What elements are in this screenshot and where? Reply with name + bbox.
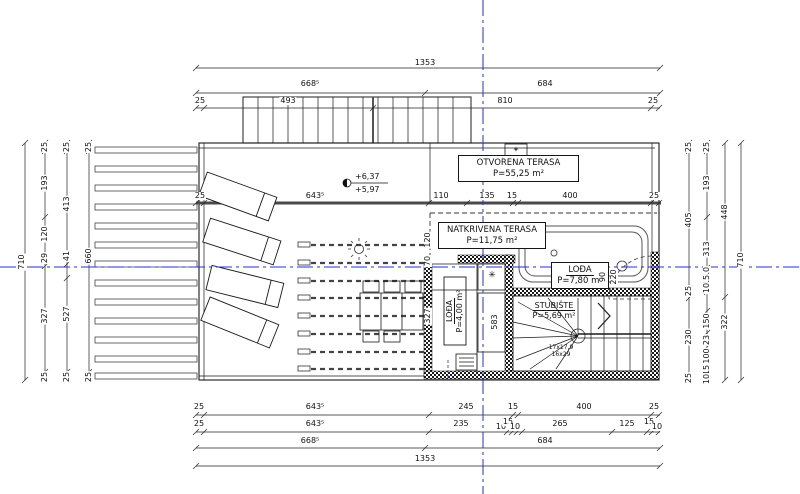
dim-label: 10	[651, 423, 663, 431]
room-name: OTVORENA TERASA	[462, 158, 575, 169]
room-label-otvorena-terasa: OTVORENA TERASA P=55,25 m²	[458, 155, 579, 182]
dim-label: 527	[63, 305, 71, 322]
dim-label: 25	[648, 403, 660, 411]
dining-set	[360, 281, 423, 342]
room-area: P=4,00 m²	[455, 278, 465, 344]
dim-label: 322	[721, 313, 729, 330]
dim-label: 405	[685, 211, 693, 228]
room-area: P=55,25 m²	[462, 169, 575, 180]
sun-icon	[348, 238, 370, 260]
dim-label: 70	[424, 255, 432, 267]
dim-label: 25	[685, 372, 693, 384]
dim-label: 10	[703, 282, 711, 294]
dim-label: 193	[703, 174, 711, 191]
room-label-natkrivena-terasa: NATKRIVENA TERASA P=11,75 m²	[438, 222, 546, 249]
dim-label: 15	[506, 192, 518, 200]
dim-label: 25	[41, 141, 49, 153]
dim-label: 25	[648, 192, 660, 200]
dim-label: 413	[63, 195, 71, 212]
dim-label: 220	[610, 268, 618, 285]
centerlines	[0, 0, 800, 494]
dim-label: 245	[457, 403, 474, 411]
dim-label: 90	[599, 271, 607, 283]
room-name: NATKRIVENA TERASA	[442, 225, 542, 236]
dim-label: 230	[685, 328, 693, 345]
dim-label: 1353	[414, 59, 436, 67]
dim-label: 193	[41, 174, 49, 191]
dim-label: 23	[703, 334, 711, 346]
dim-label: 400	[575, 403, 592, 411]
stair-note-treads: 16x29	[552, 352, 571, 358]
dim-label: 25	[703, 141, 711, 153]
floorplan-canvas: OTVORENA TERASA P=55,25 m² NATKRIVENA TE…	[0, 0, 800, 494]
dim-label: 643⁵	[305, 420, 325, 428]
room-area: P=11,75 m²	[442, 236, 542, 247]
dim-label: 125	[618, 420, 635, 428]
room-name: STUBIŠTE	[533, 301, 576, 311]
louvre-slats	[95, 147, 197, 379]
dim-label: 327	[424, 307, 432, 324]
dim-label: 313	[703, 240, 711, 257]
dim-label: 25	[85, 141, 93, 153]
dim-label: 29	[41, 252, 49, 264]
elevation-lower: +5,97	[355, 186, 380, 194]
sun-loungers	[199, 172, 284, 348]
room-name: LOĐA	[566, 265, 593, 276]
dim-label: 643⁵	[305, 403, 325, 411]
dim-label: 10	[509, 423, 521, 431]
room-name: LOĐA	[445, 298, 455, 324]
dim-label: 710	[18, 253, 26, 270]
dim-label: 25	[647, 97, 659, 105]
room-label-stubiste: STUBIŠTE P=5,69 m²	[522, 301, 586, 321]
dim-label: 25	[193, 420, 205, 428]
dim-label: 25	[685, 285, 693, 297]
room-area: P=5,69 m²	[522, 311, 586, 321]
dim-label: 25	[41, 371, 49, 383]
dim-label: 25	[63, 141, 71, 153]
pergola-beams-dashed	[302, 245, 428, 369]
dim-label: 583	[491, 313, 499, 330]
dim-label: 25	[194, 97, 206, 105]
dim-label: 25	[193, 403, 205, 411]
dim-label: 15	[507, 403, 519, 411]
dim-label: 668⁵	[300, 437, 320, 445]
dim-label: 235	[452, 420, 469, 428]
dim-label: 25	[63, 371, 71, 383]
dim-label: 1353	[414, 455, 436, 463]
dim-label: 120	[424, 231, 432, 248]
dim-label: 41	[63, 250, 71, 262]
dim-label: 10	[703, 373, 711, 385]
dim-label: 668⁵	[300, 80, 320, 88]
dim-label: 110	[432, 192, 449, 200]
dim-label: 150	[703, 312, 711, 329]
dim-label: 810	[496, 97, 513, 105]
dim-label: 327	[41, 307, 49, 324]
dim-label: 25	[85, 371, 93, 383]
dim-label: 684	[536, 80, 553, 88]
pergola-beam-caps	[298, 242, 310, 371]
dim-label: 25	[685, 141, 693, 153]
dim-label: 120	[41, 225, 49, 242]
dim-label: 135	[478, 192, 495, 200]
pergola-canopy	[243, 97, 471, 143]
dim-label: 710	[737, 251, 745, 268]
dim-label: 448	[721, 203, 729, 220]
dim-label: 643⁵	[305, 192, 325, 200]
elevation-upper: +6,37	[355, 173, 380, 181]
dim-label: 265	[551, 420, 568, 428]
roof-vent-icon: ✦	[513, 146, 520, 154]
dim-label: 400	[561, 192, 578, 200]
dim-label: 660	[85, 247, 93, 264]
dim-label: 100	[703, 347, 711, 364]
dim-label: 25	[194, 192, 206, 200]
plan-linework	[0, 0, 800, 494]
room-label-lodja-b: LOĐA P=4,00 m²	[445, 278, 465, 344]
dim-label: 493	[279, 97, 296, 105]
fixture-star-icon: ✳	[488, 272, 496, 281]
dim-label: 684	[536, 437, 553, 445]
